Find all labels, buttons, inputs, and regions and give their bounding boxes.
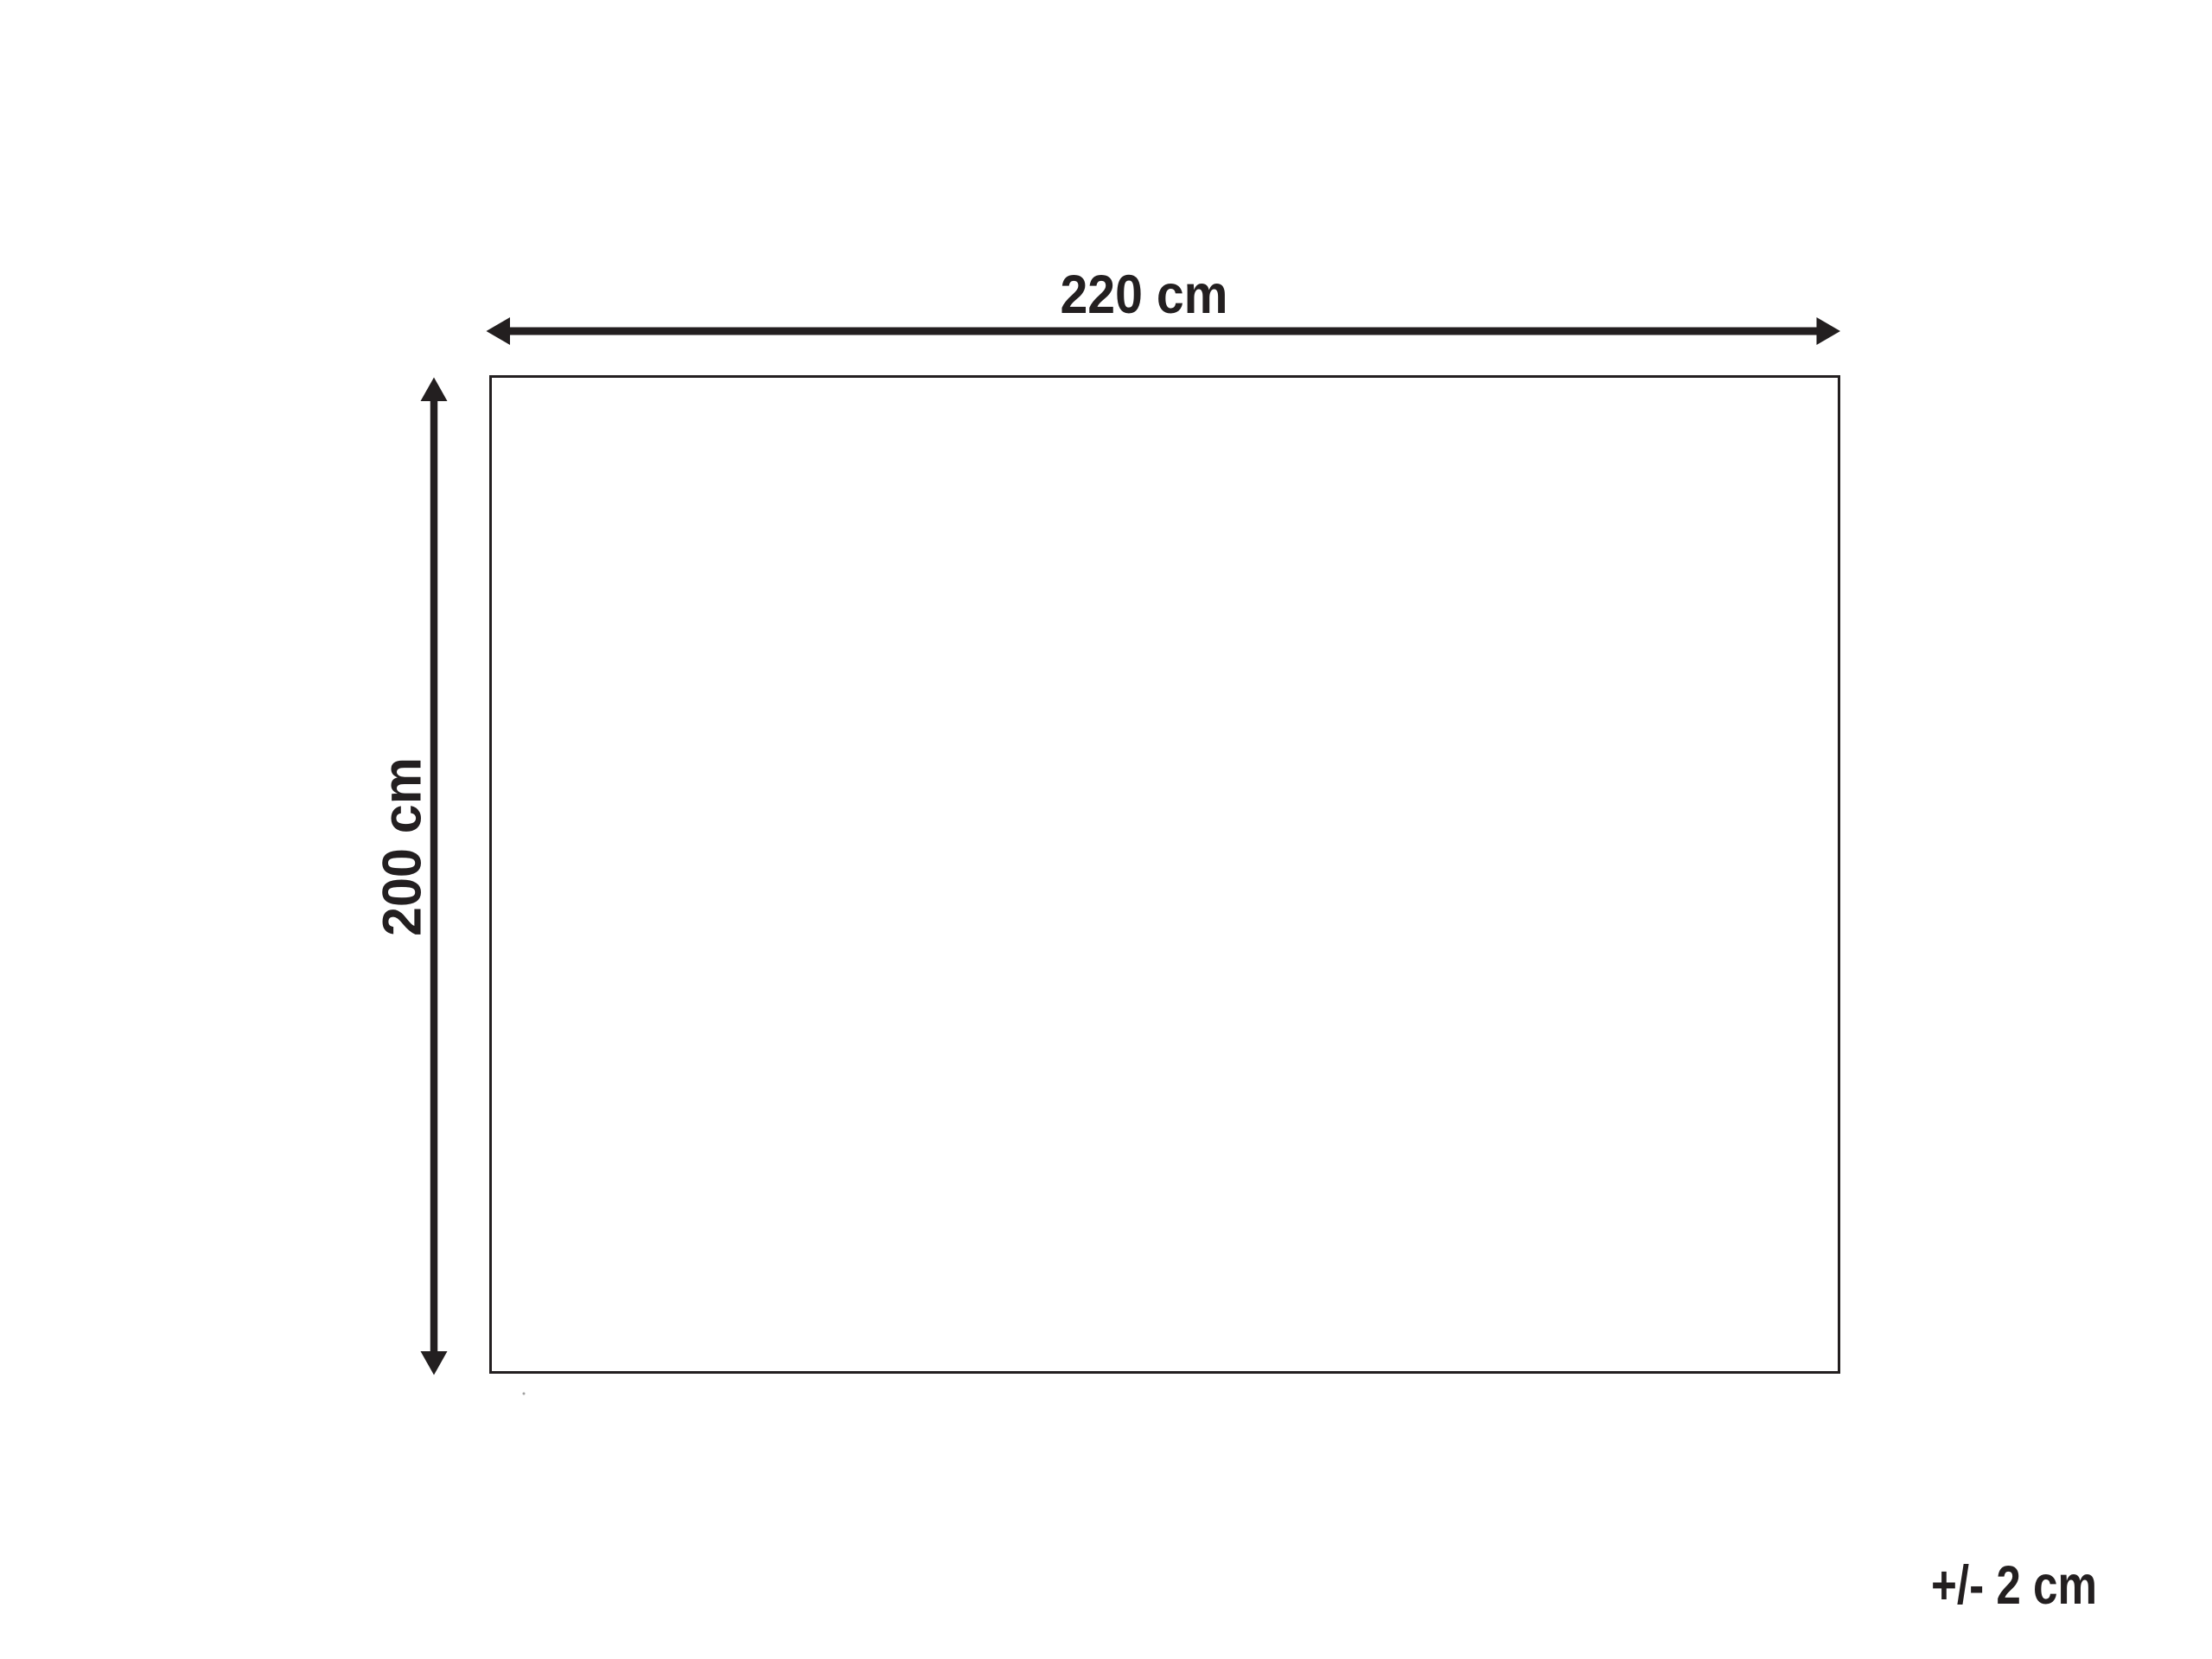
svg-text:200 cm: 200 cm (373, 757, 433, 936)
svg-text:220 cm: 220 cm (1061, 265, 1228, 325)
svg-text:+/- 2 cm: +/- 2 cm (1931, 1555, 2097, 1616)
